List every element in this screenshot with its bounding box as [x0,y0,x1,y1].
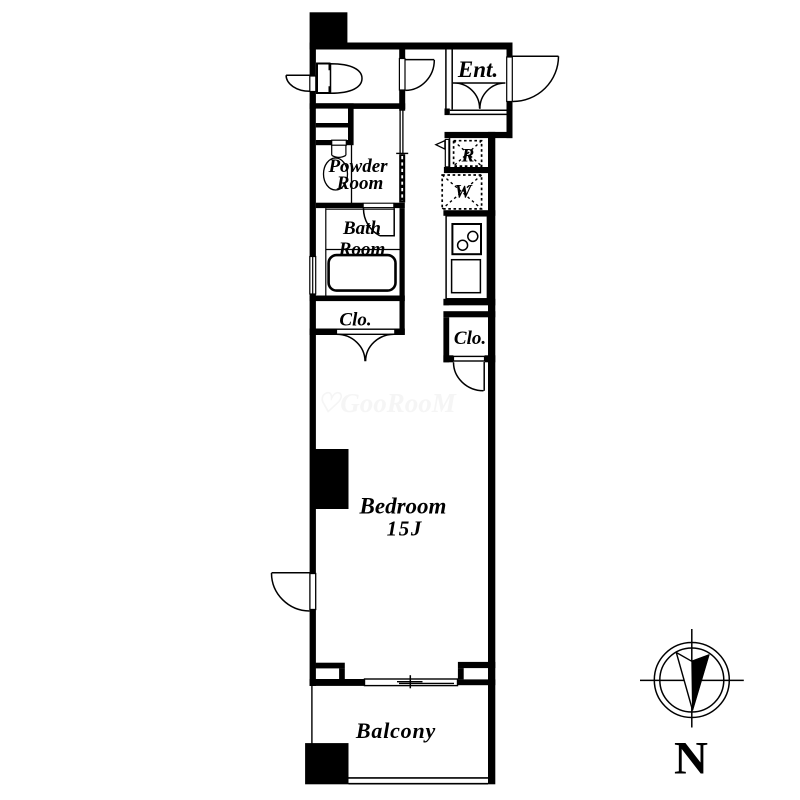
svg-text:W: W [455,182,473,203]
svg-text:♡GooRooM: ♡GooRooM [316,388,457,418]
svg-text:Clo.: Clo. [454,328,486,349]
svg-text:Ent.: Ent. [457,57,498,82]
svg-text:15J: 15J [387,517,423,541]
svg-text:Bath: Bath [342,218,381,239]
svg-text:N: N [674,733,708,785]
svg-text:R: R [461,146,475,167]
svg-text:Balcony: Balcony [355,718,436,743]
svg-text:Room: Room [338,239,385,260]
svg-text:Bedroom: Bedroom [359,494,447,519]
svg-text:Room: Room [336,173,383,194]
svg-text:Clo.: Clo. [339,310,371,331]
